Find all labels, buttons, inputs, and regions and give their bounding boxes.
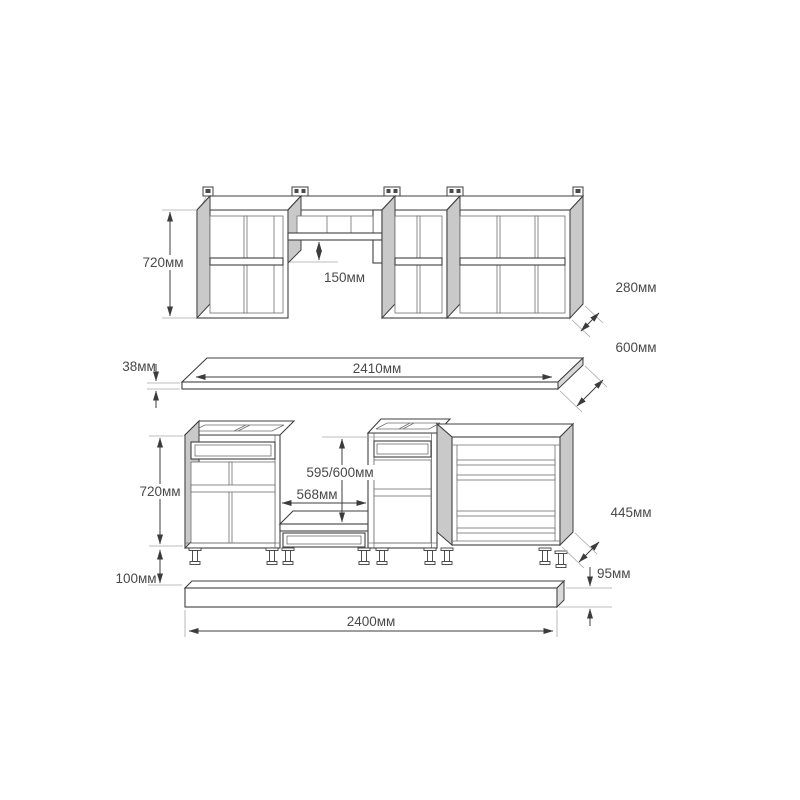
plinth-front xyxy=(185,588,557,607)
dim-label-opening-width: 568мм xyxy=(296,487,337,502)
dim-label-opening-height: 595/600мм xyxy=(306,465,373,480)
side-panel xyxy=(382,196,395,318)
dimension-plinth-height: 95мм xyxy=(559,566,631,626)
plinth-top-face xyxy=(185,581,564,588)
cabinet-top-face xyxy=(288,196,395,210)
dimension-opening-width: 568мм xyxy=(282,487,366,503)
side-panel xyxy=(437,424,452,545)
dimension-drawing-svg: 720мм 150мм 280мм 2410мм xyxy=(0,0,800,800)
shelf xyxy=(395,258,442,265)
drawer-rail xyxy=(457,475,555,480)
side-panel xyxy=(197,196,210,318)
dim-label-legs-height: 100мм xyxy=(115,571,156,586)
dim-label-base-height: 720мм xyxy=(139,484,180,499)
cabinet-top-face xyxy=(447,196,583,210)
wall-cabinet-right xyxy=(447,196,583,318)
dim-label-countertop-length: 2410мм xyxy=(353,361,402,376)
side-panel xyxy=(447,196,460,318)
dim-label-upper-depth: 280мм xyxy=(615,280,656,295)
countertop: 2410мм 38мм 600мм xyxy=(122,340,656,412)
dim-label-countertop-depth: 600мм xyxy=(615,340,656,355)
cabinet-top-face xyxy=(437,424,573,437)
adjustable-leg xyxy=(441,548,453,565)
hood-shelf xyxy=(288,233,382,240)
side-panel xyxy=(560,424,573,545)
dimension-countertop-thickness: 38мм xyxy=(122,359,180,408)
adjustable-leg xyxy=(266,548,278,565)
dim-label-base-depth: 445мм xyxy=(610,505,651,520)
adjustable-leg xyxy=(189,548,201,565)
dimension-upper-height: 720мм xyxy=(141,210,197,318)
dim-label-plinth-length: 2400мм xyxy=(347,614,396,629)
divider xyxy=(229,462,232,543)
dim-label-countertop-thickness: 38мм xyxy=(122,359,156,374)
adjustable-leg xyxy=(282,548,294,565)
drawer-rail xyxy=(457,528,555,533)
shelf xyxy=(460,258,565,265)
drawer-rail xyxy=(457,511,555,516)
side-panel xyxy=(570,196,583,318)
shelf xyxy=(374,489,431,496)
base-cabinet-right xyxy=(437,424,573,545)
appliance-opening xyxy=(280,511,381,547)
cabinet-top-face xyxy=(197,196,301,210)
adjustable-leg xyxy=(555,551,567,568)
dimension-upper-depth: 280мм xyxy=(572,280,657,337)
base-cabinets-row: 720мм 595/600мм 568мм 445мм 100мм xyxy=(115,419,651,586)
dimension-countertop-depth: 600мм xyxy=(560,340,657,412)
dimension-base-depth: 445мм xyxy=(562,505,652,568)
kitchen-assembly-drawing: 720мм 150мм 280мм 2410мм xyxy=(0,0,800,800)
dim-label-hood-shelf: 150мм xyxy=(324,270,365,285)
wall-cabinet-left xyxy=(197,196,301,318)
hood-cabinet xyxy=(288,196,395,263)
adjustable-leg xyxy=(424,548,436,565)
dimension-plinth-length: 2400мм xyxy=(185,610,557,637)
adjustable-leg xyxy=(358,548,370,565)
countertop-front-edge xyxy=(182,382,558,389)
plinth: 2400мм 95мм xyxy=(185,566,631,637)
dimension-base-height: 720мм xyxy=(138,436,183,546)
dim-label-plinth-height: 95мм xyxy=(597,566,631,581)
opening-bottom-panel xyxy=(280,511,381,524)
dimension-legs-height: 100мм xyxy=(115,550,182,586)
shelf xyxy=(210,258,283,265)
upper-cabinets-row: 720мм 150мм 280мм xyxy=(141,187,657,337)
cabinet-legs xyxy=(189,548,567,568)
adjustable-leg xyxy=(376,548,388,565)
base-cabinet-left xyxy=(185,421,294,548)
dim-label-upper-height: 720мм xyxy=(142,255,183,270)
adjustable-leg xyxy=(539,548,551,565)
shelf xyxy=(191,485,275,492)
drawer-rail xyxy=(457,460,555,465)
